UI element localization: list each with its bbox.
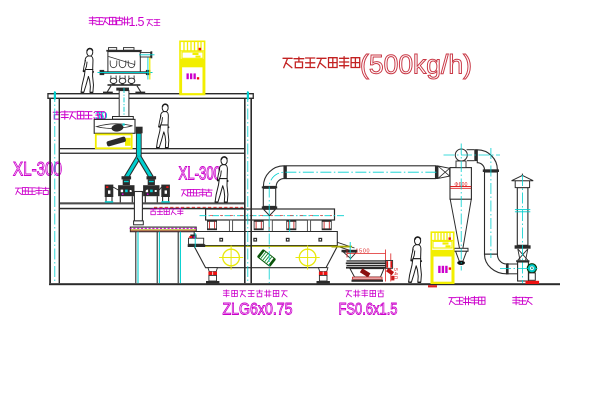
svg-text:ZLG6x0.75: ZLG6x0.75 <box>223 301 293 319</box>
svg-text:XL-300: XL-300 <box>179 163 222 183</box>
svg-text:1500: 1500 <box>356 249 370 255</box>
svg-text:1.5: 1.5 <box>129 15 145 29</box>
svg-text:FS0.6x1.5: FS0.6x1.5 <box>339 301 398 319</box>
svg-text:(500kg/h): (500kg/h) <box>360 50 472 80</box>
